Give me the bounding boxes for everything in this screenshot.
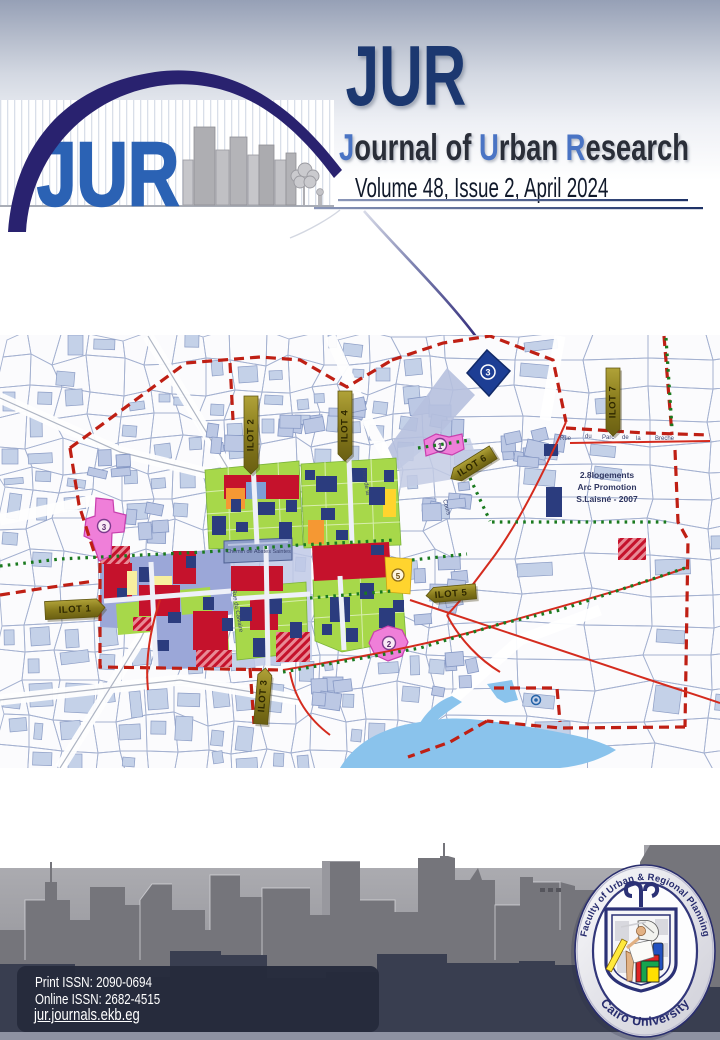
svg-text:de: de: [622, 435, 629, 441]
svg-text:2.8logements: 2.8logements: [580, 470, 635, 480]
svg-text:Rue: Rue: [560, 436, 572, 442]
svg-text:2: 2: [387, 640, 392, 649]
svg-text:Breche: Breche: [655, 436, 675, 442]
svg-text:S.Laisné - 2007: S.Laisné - 2007: [576, 494, 638, 504]
svg-text:ILOT 4: ILOT 4: [340, 410, 351, 443]
svg-text:ILOT 7: ILOT 7: [608, 386, 619, 419]
svg-text:Chemin de Abates Saintes: Chemin de Abates Saintes: [226, 549, 291, 555]
svg-text:du: du: [585, 434, 592, 440]
svg-text:la: la: [636, 436, 641, 442]
svg-text:ILOT 1: ILOT 1: [58, 603, 91, 616]
svg-text:Arc Promotion: Arc Promotion: [577, 482, 636, 492]
svg-text:3: 3: [102, 523, 107, 532]
svg-text:3: 3: [485, 368, 490, 378]
svg-text:5: 5: [396, 572, 401, 581]
svg-text:ILOT 2: ILOT 2: [246, 419, 257, 452]
